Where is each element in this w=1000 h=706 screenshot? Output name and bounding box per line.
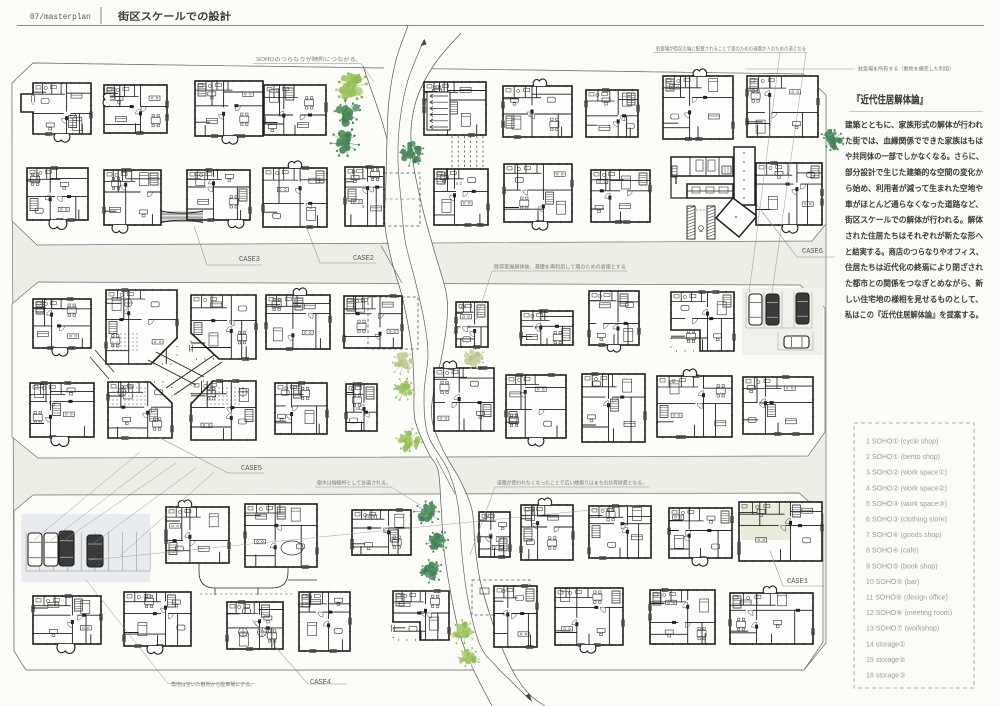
svg-text:12 SOHO⑥ (meeting room): 12 SOHO⑥ (meeting room) <box>866 609 952 617</box>
svg-text:16 storage③: 16 storage③ <box>866 672 905 680</box>
svg-text:街区スケールでの設計: 街区スケールでの設計 <box>117 10 231 23</box>
svg-text:CASE5: CASE5 <box>241 465 262 473</box>
svg-text:や共同体の一部でしかなくなる。さらに、: や共同体の一部でしかなくなる。さらに、 <box>845 151 983 161</box>
svg-text:13 SOHO⑦ (workshop): 13 SOHO⑦ (workshop) <box>866 625 939 633</box>
svg-text:CASE4: CASE4 <box>310 679 331 687</box>
svg-text:9 SOHO⑤ (book shop): 9 SOHO⑤ (book shop) <box>866 562 938 570</box>
svg-text:た街では、血縁関係でできた家族はもは: た街では、血縁関係でできた家族はもは <box>845 135 983 145</box>
svg-text:CASE1: CASE1 <box>787 578 808 586</box>
svg-text:8 3: 8 3 <box>456 181 462 186</box>
svg-text:3 SOHO② (work space①): 3 SOHO② (work space①) <box>866 469 947 477</box>
svg-text:『近代住居解体論』: 『近代住居解体論』 <box>852 93 928 106</box>
svg-text:14 storage①: 14 storage① <box>866 640 905 648</box>
svg-text:7 SOHO④ (goods shop): 7 SOHO④ (goods shop) <box>866 531 942 539</box>
svg-text:街区スケールでの解体が行われる。解体: 街区スケールでの解体が行われる。解体 <box>844 215 984 225</box>
svg-text:10 SOHO⑤ (bar): 10 SOHO⑤ (bar) <box>866 578 919 586</box>
svg-text:CASE2: CASE2 <box>353 255 374 263</box>
svg-text:8 SOHO④ (cafe): 8 SOHO④ (cafe) <box>866 547 919 555</box>
svg-text:された住居たちはそれぞれが新たな形へ: された住居たちはそれぞれが新たな形へ <box>845 230 984 240</box>
svg-text:既存家屋解体後、基礎を再利用して畑のための倉庫とする: 既存家屋解体後、基礎を再利用して畑のための倉庫とする <box>494 264 626 271</box>
svg-text:15: 15 <box>355 406 360 411</box>
svg-text:15 storage②: 15 storage② <box>866 656 905 664</box>
svg-text:住居たちは近代化の終焉により閉ざされ: 住居たちは近代化の終焉により閉ざされ <box>845 262 984 272</box>
svg-text:CASE6: CASE6 <box>802 248 823 256</box>
svg-text:樹木は緑樹杯として計画される。: 樹木は緑樹杯として計画される。 <box>317 480 391 487</box>
svg-text:建築とともに、家族形式の解体が行われ: 建築とともに、家族形式の解体が行われ <box>845 120 984 130</box>
svg-text:角地は空いた敷地から駐車場にする。: 角地は空いた敷地から駐車場にする。 <box>171 681 255 688</box>
svg-text:11 SOHO⑥ (design office): 11 SOHO⑥ (design office) <box>866 594 948 602</box>
svg-text:私はこの『近代住居解体論』を提案する。: 私はこの『近代住居解体論』を提案する。 <box>844 310 983 320</box>
svg-text:駐車場を所有する（敷地を補完した利用）: 駐車場を所有する（敷地を補完した利用） <box>858 66 954 73</box>
svg-text:しい住宅地の様相を見せるものとして、: しい住宅地の様相を見せるものとして、 <box>845 294 983 304</box>
svg-text:6 SOHO③ (clothing store): 6 SOHO③ (clothing store) <box>866 516 947 524</box>
svg-text:07/masterplan: 07/masterplan <box>30 14 91 22</box>
svg-text:駐車場が街区の端に配置されることで車のための道路が人のための: 駐車場が街区の端に配置されることで車のための道路が人のための道となる <box>656 46 806 53</box>
svg-text:2 SOHO① (bento shop): 2 SOHO① (bento shop) <box>866 453 940 461</box>
svg-text:た都市との関係をつなぎとめながら、新: た都市との関係をつなぎとめながら、新 <box>845 278 984 288</box>
svg-text:SOHOのつらなりが随所につながる。: SOHOのつらなりが随所につながる。 <box>256 56 362 63</box>
svg-text:部分設計で生じた建築的な空間の変化か: 部分設計で生じた建築的な空間の変化か <box>845 167 984 177</box>
svg-text:CASE3: CASE3 <box>239 256 260 264</box>
svg-text:16: 16 <box>488 532 493 537</box>
svg-text:5 SOHO③ (work space③): 5 SOHO③ (work space③) <box>866 500 947 508</box>
svg-text:車がほとんど通らなくなった道路など、: 車がほとんど通らなくなった道路など、 <box>845 199 983 209</box>
svg-text:と結実する。商店のつらなりやオフィス、: と結実する。商店のつらなりやオフィス、 <box>845 246 983 256</box>
svg-text:1 SOHO① (cycle shop): 1 SOHO① (cycle shop) <box>866 438 938 446</box>
svg-text:ら始め、利用者が減って生まれた空地や: ら始め、利用者が減って生まれた空地や <box>845 183 983 193</box>
svg-text:道路が使われなくなったことで広い縁側りはまちの共有財産となる: 道路が使われなくなったことで広い縁側りはまちの共有財産となる。 <box>497 480 647 487</box>
svg-text:4 SOHO② (work space②): 4 SOHO② (work space②) <box>866 484 947 492</box>
